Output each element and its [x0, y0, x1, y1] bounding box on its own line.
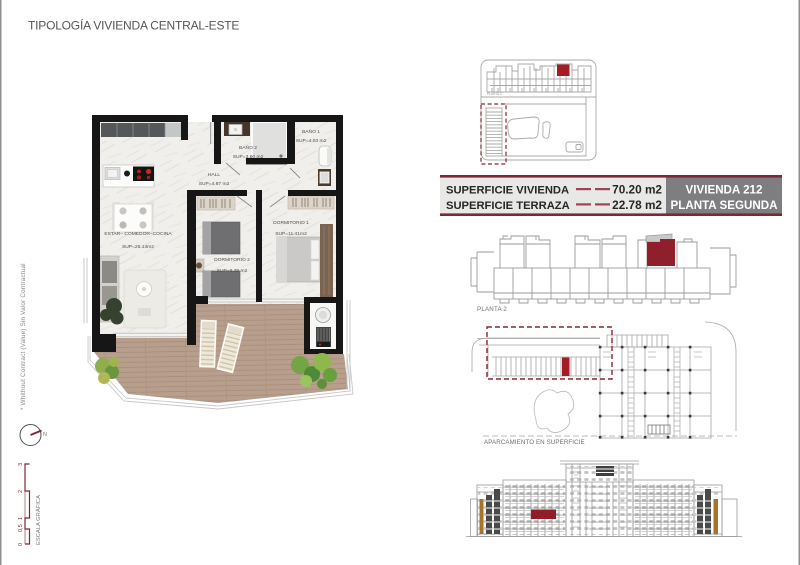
- svg-text:1: 1: [18, 517, 24, 520]
- svg-text:SUP=3.60 m2: SUP=3.60 m2: [233, 154, 264, 160]
- svg-text:2: 2: [18, 490, 24, 493]
- svg-text:BAÑO 2: BAÑO 2: [239, 144, 257, 151]
- svg-text:DORMITORIO 1: DORMITORIO 1: [273, 220, 309, 226]
- svg-text:N: N: [43, 432, 47, 438]
- svg-text:PLANTA 2: PLANTA 2: [477, 306, 507, 313]
- svg-text:SUP=11.41m2: SUP=11.41m2: [275, 231, 307, 237]
- svg-text:DORMITORIO 2: DORMITORIO 2: [214, 257, 250, 263]
- svg-text:* Whithout Contract (Value) Si: * Whithout Contract (Value) Sin Valor Co…: [20, 263, 27, 410]
- svg-text:PLANTA SEGUNDA: PLANTA SEGUNDA: [671, 199, 779, 212]
- svg-text:22.78 m2: 22.78 m2: [612, 198, 662, 212]
- svg-text:TIPOLOGÍA VIVIENDA CENTRAL-EST: TIPOLOGÍA VIVIENDA CENTRAL-ESTE: [28, 18, 239, 33]
- svg-text:SUP=4.03 m2: SUP=4.03 m2: [296, 138, 327, 144]
- svg-text:SUP=9.38 m2: SUP=9.38 m2: [217, 268, 248, 274]
- svg-text:70.20 m2: 70.20 m2: [612, 183, 662, 197]
- svg-text:SUP=4.87 m2: SUP=4.87 m2: [199, 181, 230, 187]
- svg-text:0: 0: [18, 543, 24, 546]
- svg-text:0,5: 0,5: [18, 524, 24, 532]
- svg-text:VIVIENDA 212: VIVIENDA 212: [686, 184, 763, 197]
- svg-text:3: 3: [18, 463, 24, 466]
- svg-text:ESTAR– COMEDOR–COCINA: ESTAR– COMEDOR–COCINA: [104, 231, 172, 237]
- svg-text:SUPERFICIE TERRAZA: SUPERFICIE TERRAZA: [446, 200, 570, 212]
- svg-text:SUPERFICIE VIVIENDA: SUPERFICIE VIVIENDA: [446, 185, 569, 197]
- svg-text:BAÑO 1: BAÑO 1: [302, 128, 320, 135]
- svg-text:PLANTA 2: PLANTA 2: [487, 92, 502, 96]
- svg-text:ESCALA GRÁFICA: ESCALA GRÁFICA: [35, 495, 42, 545]
- svg-text:HALL: HALL: [208, 172, 221, 178]
- svg-text:SUP=25.14m2: SUP=25.14m2: [122, 244, 154, 250]
- svg-text:APARCAMIENTO EN SUPERFICIE: APARCAMIENTO EN SUPERFICIE: [484, 439, 585, 446]
